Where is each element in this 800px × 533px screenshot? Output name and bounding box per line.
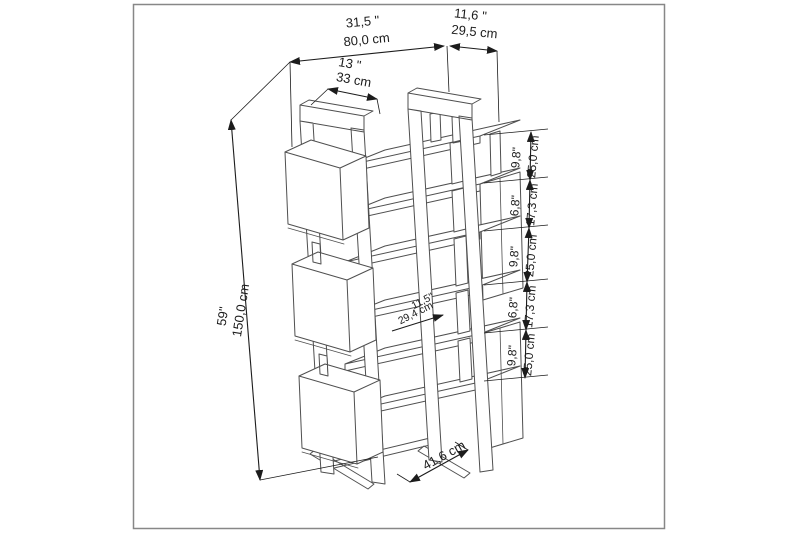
page: 31,5 " 80,0 cm 11,6 " 29,5 cm 13 " 33 cm… xyxy=(0,0,800,533)
dim-seg4-inches: 6,8" xyxy=(505,297,521,319)
dim-seg5-inches: 9,8" xyxy=(504,345,520,367)
dim-seg3-inches: 9,8" xyxy=(506,246,522,268)
dim-seg2-inches: 6,8" xyxy=(507,195,523,217)
dim-seg1-inches: 9,8" xyxy=(508,147,524,169)
dim-height-inches: 59" xyxy=(214,305,232,327)
furniture-dimension-diagram: 31,5 " 80,0 cm 11,6 " 29,5 cm 13 " 33 cm… xyxy=(0,0,800,533)
